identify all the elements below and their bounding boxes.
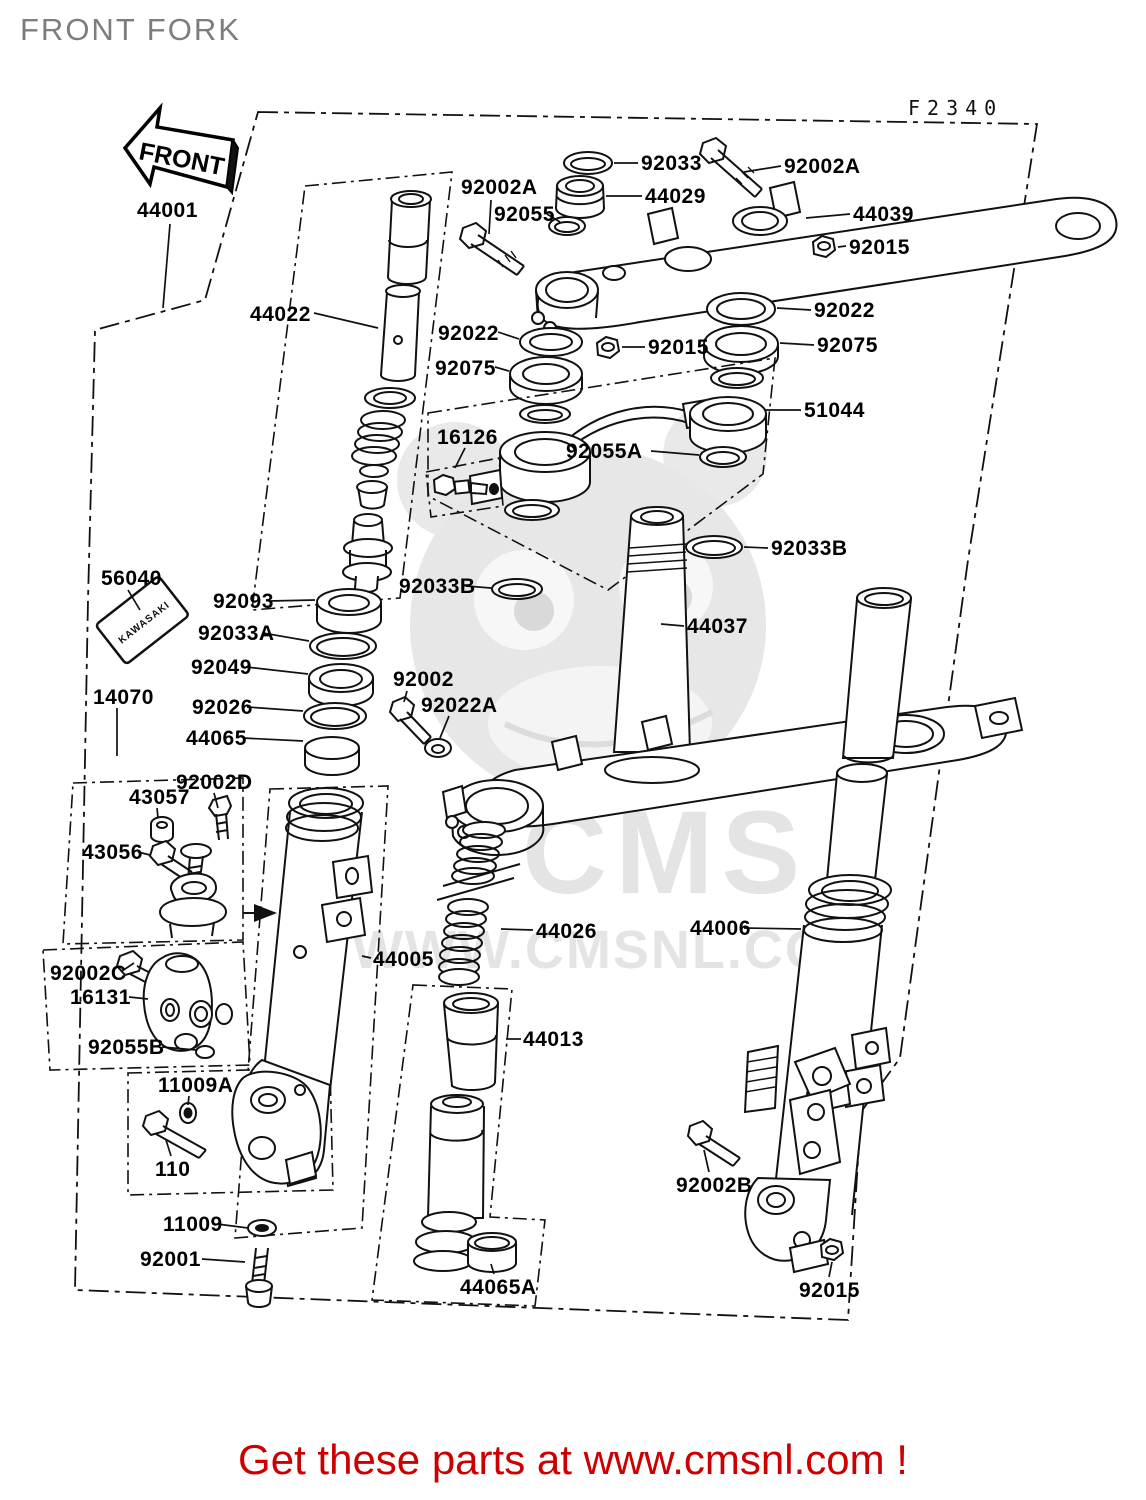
part-label-92055b: 92055B <box>88 1036 165 1060</box>
part-label-92015-mid: 92015 <box>648 336 709 360</box>
part-label-44065: 44065 <box>186 727 247 751</box>
part-label-92002c: 92002C <box>50 962 127 986</box>
part-label-92015-bottom: 92015 <box>799 1279 860 1303</box>
part-label-92001: 92001 <box>140 1248 201 1272</box>
part-label-44037: 44037 <box>687 615 748 639</box>
art-washer-92022-right <box>707 293 775 325</box>
part-label-44022: 44022 <box>250 303 311 327</box>
art-cap-44029 <box>556 176 604 218</box>
art-bolt-92001 <box>246 1248 272 1307</box>
art-adjuster-parts <box>150 796 231 938</box>
part-label-92002a-top: 92002A <box>784 155 861 179</box>
part-label-92026: 92026 <box>192 696 253 720</box>
art-bushing-44065 <box>305 737 359 775</box>
art-oring-92033 <box>564 152 612 174</box>
front-arrow-icon: FRONT <box>125 108 238 193</box>
part-label-44005: 44005 <box>373 948 434 972</box>
art-washer-92022-left <box>520 328 582 356</box>
part-label-11009: 11009 <box>163 1213 223 1237</box>
part-label-14070: 14070 <box>93 686 154 710</box>
art-bolt-92002a-top <box>700 138 762 197</box>
part-label-92022a: 92022A <box>421 694 498 718</box>
art-ring-92026 <box>304 703 366 729</box>
art-oring-92055a <box>700 447 746 467</box>
art-nut-92015-mid <box>597 337 619 358</box>
part-label-43056: 43056 <box>82 841 143 865</box>
part-label-92002: 92002 <box>393 668 454 692</box>
art-washer-92022a <box>425 739 451 757</box>
art-ring-92033a <box>310 633 376 659</box>
part-label-92002a-left: 92002A <box>461 176 538 200</box>
part-label-92033b-left: 92033B <box>399 575 476 599</box>
part-label-92093: 92093 <box>213 590 274 614</box>
part-label-44039: 44039 <box>853 203 914 227</box>
art-nut-92015-bottom <box>821 1239 843 1260</box>
part-label-56040: 56040 <box>101 567 162 591</box>
promo-footer-text: Get these parts at www.cmsnl.com ! <box>0 1436 1146 1484</box>
art-seal-92049 <box>309 664 373 706</box>
parts-diagram-page: FRONT FORK F2340 CMS WWW.CMSNL.COM <box>0 0 1146 1500</box>
part-label-44013: 44013 <box>523 1028 584 1052</box>
part-label-92015-top: 92015 <box>849 236 910 260</box>
part-label-92022-right: 92022 <box>814 299 875 323</box>
part-label-92022-left: 92022 <box>438 322 499 346</box>
part-label-92075-left: 92075 <box>435 357 496 381</box>
part-label-51044: 51044 <box>804 399 865 423</box>
part-label-110: 110 <box>155 1158 190 1182</box>
art-oring-92033b-left <box>492 579 542 599</box>
diagram-canvas: CMS WWW.CMSNL.COM FRONT <box>0 0 1146 1500</box>
part-label-16131: 16131 <box>70 986 131 1010</box>
art-washer-11009 <box>248 1220 276 1236</box>
art-axle-holder <box>232 1072 320 1184</box>
part-label-44029: 44029 <box>645 185 706 209</box>
box-link-arrow <box>243 904 277 922</box>
part-label-92055: 92055 <box>494 203 555 227</box>
art-oring-92033b-right <box>686 536 742 558</box>
part-label-92033a: 92033A <box>198 622 275 646</box>
part-label-44006: 44006 <box>690 917 751 941</box>
part-label-11009a: 11009A <box>158 1074 233 1098</box>
part-label-92075-right: 92075 <box>817 334 878 358</box>
part-label-92033: 92033 <box>641 152 702 176</box>
part-label-16126: 16126 <box>437 426 498 450</box>
art-bolt-110 <box>143 1111 206 1158</box>
art-cylinder-44013 <box>414 993 498 1271</box>
part-label-44001: 44001 <box>137 199 198 223</box>
art-seal-92093 <box>317 589 381 633</box>
part-label-44026: 44026 <box>536 920 597 944</box>
art-bolt-92002a-left <box>460 223 524 275</box>
art-damper-44022 <box>343 191 431 592</box>
part-label-92002b: 92002B <box>676 1174 753 1198</box>
art-washer-92075-left <box>510 357 582 404</box>
part-label-92055a: 92055A <box>566 440 643 464</box>
part-label-92049: 92049 <box>191 656 252 680</box>
part-label-43057: 43057 <box>129 786 190 810</box>
part-label-44065a: 44065A <box>460 1276 537 1300</box>
part-label-92033b-right: 92033B <box>771 537 848 561</box>
art-bolt-92002b <box>688 1121 740 1166</box>
art-washer-11009a <box>180 1103 196 1123</box>
